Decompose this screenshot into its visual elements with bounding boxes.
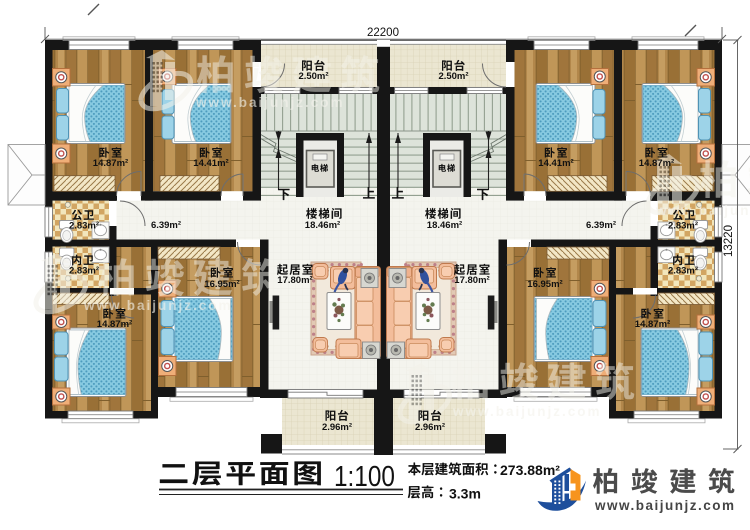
svg-text:16.95m²: 16.95m² [527,279,562,290]
svg-text:3.3m: 3.3m [449,486,481,502]
svg-text:16.95m²: 16.95m² [204,279,239,290]
svg-text:2.83m²: 2.83m² [668,221,698,232]
svg-text:www.baijunjz.com: www.baijunjz.com [452,404,602,419]
svg-text:2.50m²: 2.50m² [298,71,328,82]
svg-text:273.88m²: 273.88m² [500,462,560,478]
svg-text:13220: 13220 [723,225,735,257]
svg-text:14.41m²: 14.41m² [538,158,573,169]
svg-text:2.50m²: 2.50m² [438,71,468,82]
svg-text:18.46m²: 18.46m² [427,220,462,231]
svg-text:17.80m²: 17.80m² [454,275,489,286]
svg-text:2.83m²: 2.83m² [69,221,99,232]
svg-text:6.39m²: 6.39m² [151,220,181,231]
svg-text:14.87m²: 14.87m² [93,158,128,169]
svg-text:2.96m²: 2.96m² [415,422,445,433]
svg-text:22200: 22200 [367,27,399,39]
svg-text:www.baijunjz.com: www.baijunjz.com [655,203,750,218]
svg-text:14.87m²: 14.87m² [635,319,670,330]
svg-text:14.87m²: 14.87m² [639,158,674,169]
svg-text:www.baijunjz.com: www.baijunjz.com [83,298,233,313]
svg-text:1:100: 1:100 [334,460,395,492]
svg-text:6.39m²: 6.39m² [586,220,616,231]
svg-text:14.41m²: 14.41m² [193,158,228,169]
svg-text:14.87m²: 14.87m² [97,319,132,330]
svg-text:www.baijunjz.com: www.baijunjz.com [195,95,345,110]
svg-text:2.96m²: 2.96m² [322,422,352,433]
svg-text:17.80m²: 17.80m² [277,275,312,286]
svg-text:18.46m²: 18.46m² [305,220,340,231]
svg-text:www.baijunjz.com: www.baijunjz.com [594,498,736,513]
svg-text:2.83m²: 2.83m² [69,266,99,277]
svg-text:2.83m²: 2.83m² [668,266,698,277]
